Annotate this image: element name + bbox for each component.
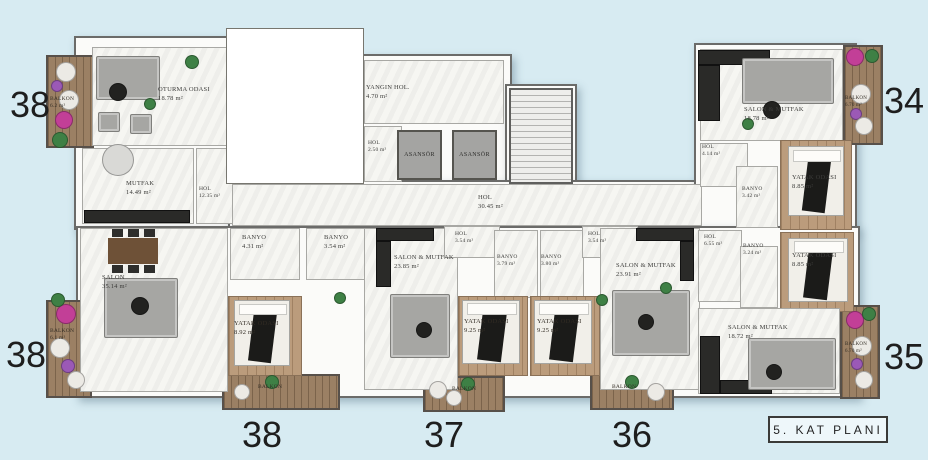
round-table: [102, 144, 134, 176]
room-asansor-2: ASANSÖR: [452, 130, 497, 180]
plant-icon: [862, 307, 876, 321]
room-label-line: 6.70 m²: [845, 349, 867, 356]
room-label-line: 18.78 m²: [158, 95, 210, 104]
sofa: [96, 56, 160, 100]
room-label: YANGIN HOL.4.70 m²: [366, 84, 410, 102]
room-label: YATAK ODASI9.25 m²: [464, 318, 508, 336]
kitchen-counter: [636, 228, 694, 241]
unit-number-38: 38: [6, 334, 46, 376]
room-label-line: 3.54 m²: [324, 243, 348, 252]
room-label-line: 3.54 m²: [455, 238, 473, 245]
room-label-line: OTURMA ODASI: [158, 86, 210, 95]
room-label-line: BALKON: [612, 384, 636, 391]
room-label-line: 23.85 m²: [394, 263, 454, 272]
room-label: YATAK ODASI9.25 m²: [537, 318, 581, 336]
room-label-line: 6.70 m²: [845, 103, 867, 110]
room-label-line: YANGIN HOL.: [366, 84, 410, 93]
balcony-table: [647, 383, 665, 401]
room-label-line: 9.25 m²: [537, 327, 581, 336]
coffee-table: [766, 364, 782, 380]
room-label-line: SALON & MUTFAK: [616, 262, 676, 271]
room-label-line: 8.85 m²: [792, 261, 836, 270]
room-label-line: BALKON: [845, 96, 867, 103]
room-label-line: 4.70 m²: [366, 93, 410, 102]
room-label: YATAK ODASI8.85 m²: [792, 252, 836, 270]
kitchen-counter: [680, 241, 694, 281]
kitchen-counter: [84, 210, 190, 223]
room-label-line: YATAK ODASI: [464, 318, 508, 327]
room-label-line: 8.92 m²: [234, 329, 278, 338]
room-label: BALKON6.2 m²: [50, 96, 74, 111]
room-void-beyaz: [226, 28, 364, 184]
bed-pillow: [239, 304, 286, 316]
plant-icon: [660, 282, 672, 294]
balcony-table: [855, 371, 873, 389]
unit-number-38: 38: [242, 414, 282, 456]
room-label: YATAK ODASI8.92 m²: [234, 320, 278, 338]
room-label-line: BALKON: [50, 328, 74, 335]
room-merdiven: [509, 88, 573, 184]
chair: [128, 265, 139, 273]
room-label-line: 3.42 m²: [742, 193, 763, 200]
room-label: BANYO3.42 m²: [742, 186, 763, 201]
room-label-line: HOL: [478, 194, 503, 203]
room-label-line: 2.50 m²: [368, 147, 386, 154]
plant-icon: [144, 98, 156, 110]
room-label-line: 30.45 m²: [478, 203, 503, 212]
room-label: BANYO3.80 m²: [541, 254, 562, 269]
room-label: HOL2.50 m²: [368, 140, 386, 155]
floor-title-box: 5. KAT PLANI: [768, 416, 888, 443]
room-label-line: SALON & MUTFAK: [744, 106, 804, 115]
room-label-line: SALON & MUTFAK: [394, 254, 454, 263]
plant-icon: [55, 111, 73, 129]
kitchen-counter: [376, 241, 391, 287]
elevator-label: ASANSÖR: [459, 152, 490, 158]
room-label: BALKON6.1 m²: [50, 328, 74, 343]
room-label: MUTFAK14.49 m²: [126, 180, 154, 198]
chair: [112, 229, 123, 237]
room-label-line: 3.54 m²: [588, 238, 606, 245]
room-label: SALON & MUTFAK23.91 m²: [616, 262, 676, 280]
room-label-line: HOL: [588, 231, 606, 238]
room-label-line: BANYO: [497, 254, 518, 261]
bed-pillow: [793, 150, 840, 162]
room-label-line: 3.24 m²: [743, 250, 764, 257]
room-label-line: BALKON: [845, 342, 867, 349]
chair: [144, 229, 155, 237]
room-label-line: SALON: [102, 274, 127, 283]
room-label-line: YATAK ODASI: [234, 320, 278, 329]
armchair: [98, 112, 120, 132]
room-label-line: 3.80 m²: [541, 261, 562, 268]
kitchen-counter: [700, 336, 720, 394]
room-label-line: 14.49 m²: [126, 189, 154, 198]
plant-icon: [851, 358, 863, 370]
plant-icon: [51, 80, 63, 92]
room-label-line: 6.55 m²: [704, 241, 722, 248]
plant-icon: [185, 55, 199, 69]
coffee-table: [109, 83, 127, 101]
plant-icon: [52, 132, 68, 148]
room-label-line: SALON & MUTFAK: [728, 324, 788, 333]
balcony-table: [67, 371, 85, 389]
unit-number-34: 34: [884, 80, 924, 122]
balcony-table: [429, 381, 447, 399]
room-label-line: 18.78 m²: [744, 115, 804, 124]
room-label: SALON & MUTFAK23.85 m²: [394, 254, 454, 272]
coffee-table: [638, 314, 654, 330]
room-label-line: BANYO: [324, 234, 348, 243]
room-label-line: BANYO: [743, 243, 764, 250]
balcony-table: [855, 117, 873, 135]
room-label: BALKON6.70 m²: [845, 96, 867, 110]
room-label-line: HOL: [704, 234, 722, 241]
room-label: YATAK ODASI8.85 m²: [792, 174, 836, 192]
balcony-table: [234, 384, 250, 400]
kitchen-counter: [698, 65, 720, 121]
room-koridor: [232, 184, 702, 226]
room-label-line: 9.25 m²: [464, 327, 508, 336]
room-label-line: 3.79 m²: [497, 261, 518, 268]
room-label-line: YATAK ODASI: [792, 252, 836, 261]
room-label-line: 18.72 m²: [728, 333, 788, 342]
room-asansor-1: ASANSÖR: [397, 130, 442, 180]
room-label: HOL6.55 m²: [704, 234, 722, 249]
room-label: HOL30.45 m²: [478, 194, 503, 212]
plant-icon: [846, 48, 864, 66]
bed-pillow: [539, 303, 588, 314]
armchair: [130, 114, 152, 134]
room-label-line: BANYO: [541, 254, 562, 261]
coffee-table: [131, 297, 149, 315]
room-label-line: BALKON: [452, 386, 476, 393]
room-label: BANYO3.54 m²: [324, 234, 348, 252]
room-label: SALON & MUTFAK18.78 m²: [744, 106, 804, 124]
room-label: BALKON6.70 m²: [845, 342, 867, 356]
room-label-line: 8.85 m²: [792, 183, 836, 192]
room-label: BANYO3.79 m²: [497, 254, 518, 269]
room-label-line: BALKON: [258, 384, 282, 391]
floor-title: 5. KAT PLANI: [773, 423, 883, 437]
room-label-line: BALKON: [50, 96, 74, 103]
elevator-label: ASANSÖR: [404, 152, 435, 158]
room-label-line: BANYO: [242, 234, 266, 243]
room-label: HOL4.14 m²: [702, 144, 720, 159]
unit-number-36: 36: [612, 414, 652, 456]
room-label-line: BANYO: [742, 186, 763, 193]
bed: [788, 238, 848, 302]
unit-number-37: 37: [424, 414, 464, 456]
chair: [128, 229, 139, 237]
room-label-line: YATAK ODASI: [537, 318, 581, 327]
plant-icon: [865, 49, 879, 63]
plant-icon: [56, 304, 76, 324]
dining-table: [108, 238, 158, 264]
room-label: BALKON: [452, 386, 476, 393]
plant-icon: [334, 292, 346, 304]
room-label: BANYO3.24 m²: [743, 243, 764, 258]
sofa: [742, 58, 834, 104]
room-label: BANYO4.31 m²: [242, 234, 266, 252]
coffee-table: [416, 322, 432, 338]
room-label: HOL3.54 m²: [455, 231, 473, 246]
room-label-line: YATAK ODASI: [792, 174, 836, 183]
room-label: SALON & MUTFAK18.72 m²: [728, 324, 788, 342]
bed-pillow: [467, 303, 516, 314]
room-label-line: 6.2 m²: [50, 103, 74, 110]
room-label-line: HOL: [455, 231, 473, 238]
room-label-line: 4.31 m²: [242, 243, 266, 252]
room-label: BALKON: [258, 384, 282, 391]
room-label-line: HOL: [368, 140, 386, 147]
unit-number-35: 35: [884, 336, 924, 378]
chair: [112, 265, 123, 273]
room-label: SALON35.14 m²: [102, 274, 127, 292]
chair: [144, 265, 155, 273]
room-label: HOL3.54 m²: [588, 231, 606, 246]
room-label-line: 12.35 m²: [199, 193, 220, 200]
unit-number-38: 38: [10, 84, 50, 126]
room-label-line: 4.14 m²: [702, 151, 720, 158]
room-label-line: 35.14 m²: [102, 283, 127, 292]
kitchen-counter: [376, 228, 434, 241]
room-label: OTURMA ODASI18.78 m²: [158, 86, 210, 104]
room-label-line: 23.91 m²: [616, 271, 676, 280]
room-label-line: HOL: [702, 144, 720, 151]
room-label: HOL12.35 m²: [199, 186, 220, 201]
room-label-line: MUTFAK: [126, 180, 154, 189]
balcony-table: [56, 62, 76, 82]
floor-plan: ASANSÖRASANSÖROTURMA ODASI18.78 m²MUTFAK…: [0, 0, 928, 460]
plant-icon: [51, 293, 65, 307]
room-label-line: 6.1 m²: [50, 335, 74, 342]
plant-icon: [596, 294, 608, 306]
room-label-line: HOL: [199, 186, 220, 193]
sofa: [748, 338, 836, 390]
room-label: BALKON: [612, 384, 636, 391]
